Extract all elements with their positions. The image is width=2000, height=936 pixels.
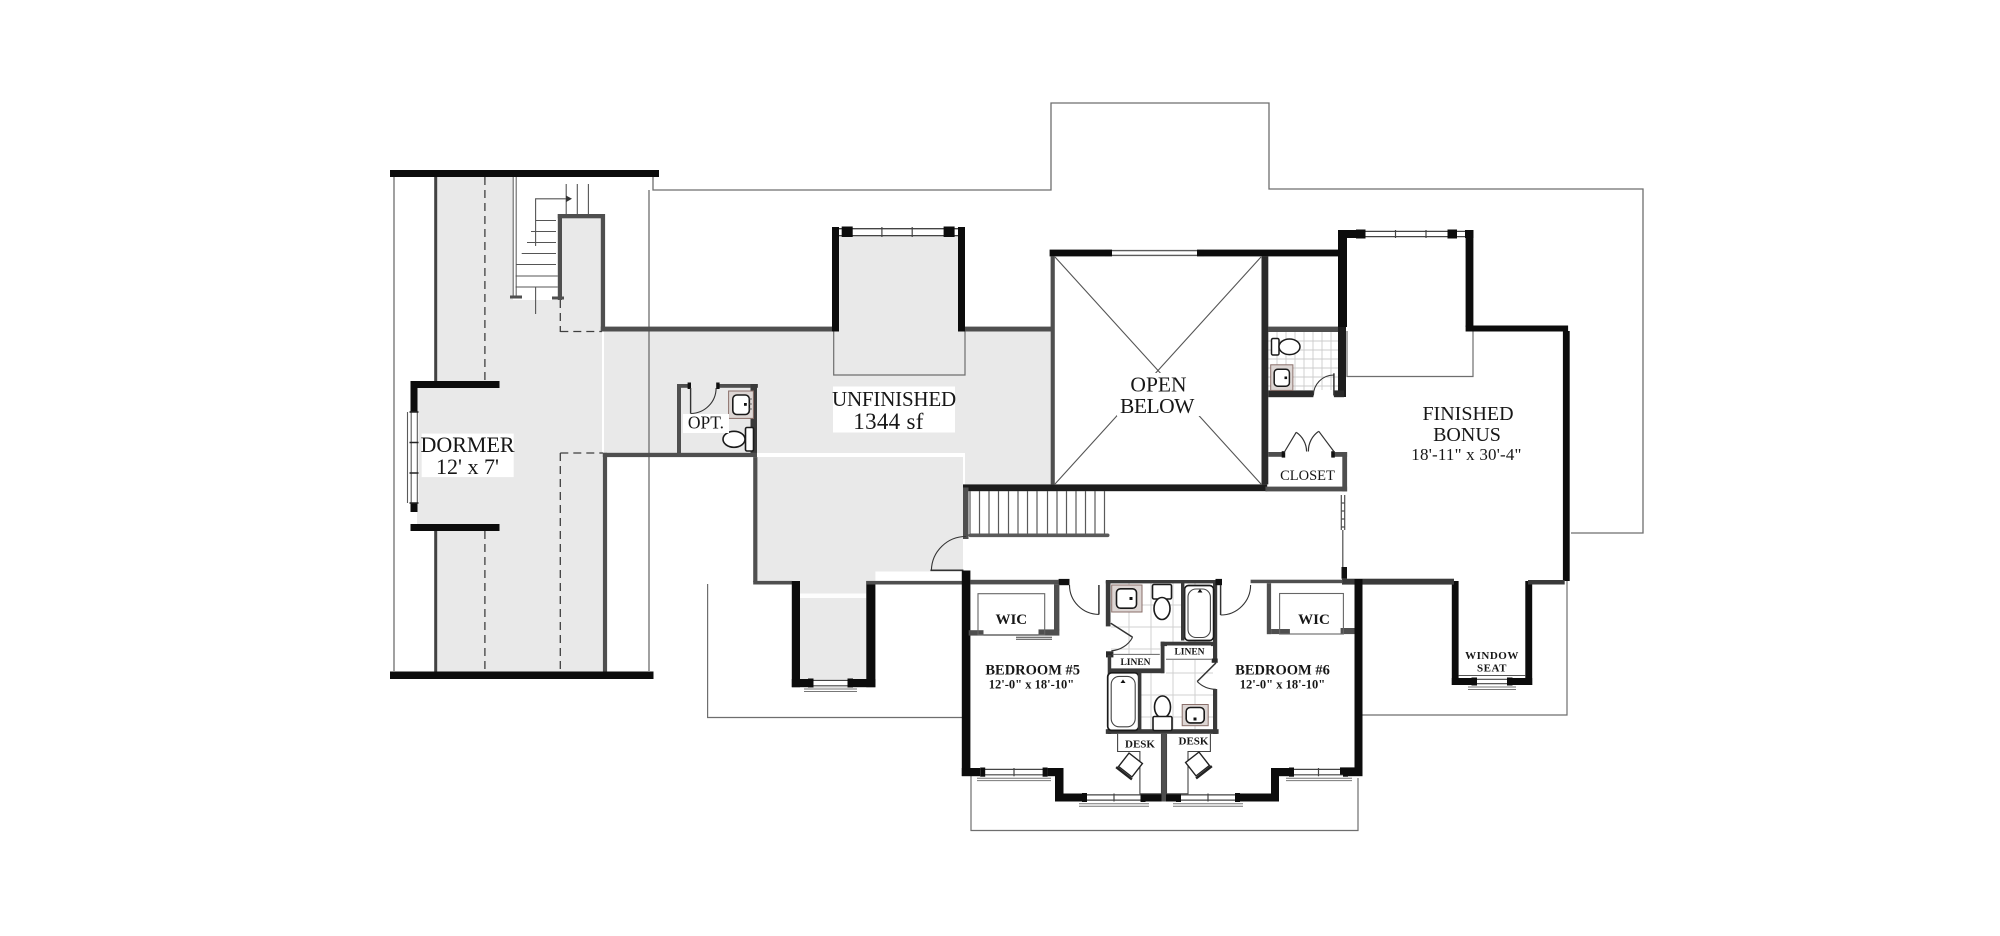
svg-text:LINEN: LINEN (1120, 658, 1150, 668)
svg-text:1344 sf: 1344 sf (853, 409, 924, 434)
svg-text:OPT.: OPT. (688, 413, 724, 433)
svg-text:12' x 7': 12' x 7' (436, 454, 499, 479)
svg-text:CLOSET: CLOSET (1280, 468, 1335, 484)
svg-text:DESK: DESK (1179, 736, 1209, 748)
svg-text:BONUS: BONUS (1433, 424, 1501, 446)
svg-text:BELOW: BELOW (1120, 394, 1195, 418)
svg-text:12'-0" x 18'-10": 12'-0" x 18'-10" (1240, 678, 1325, 692)
svg-text:BEDROOM #5: BEDROOM #5 (985, 663, 1080, 679)
svg-text:UNFINISHED: UNFINISHED (832, 387, 956, 411)
svg-text:SEAT: SEAT (1477, 663, 1507, 675)
svg-text:12'-0" x 18'-10": 12'-0" x 18'-10" (989, 678, 1074, 692)
svg-text:LINEN: LINEN (1174, 648, 1204, 658)
svg-text:OPEN: OPEN (1130, 373, 1187, 397)
svg-text:18'-11" x 30'-4": 18'-11" x 30'-4" (1411, 445, 1521, 464)
svg-text:WINDOW: WINDOW (1465, 650, 1519, 662)
svg-text:DESK: DESK (1125, 739, 1155, 751)
svg-text:FINISHED: FINISHED (1422, 403, 1513, 425)
svg-text:BEDROOM #6: BEDROOM #6 (1235, 663, 1330, 679)
svg-text:WIC: WIC (995, 612, 1027, 628)
svg-text:WIC: WIC (1298, 612, 1330, 628)
